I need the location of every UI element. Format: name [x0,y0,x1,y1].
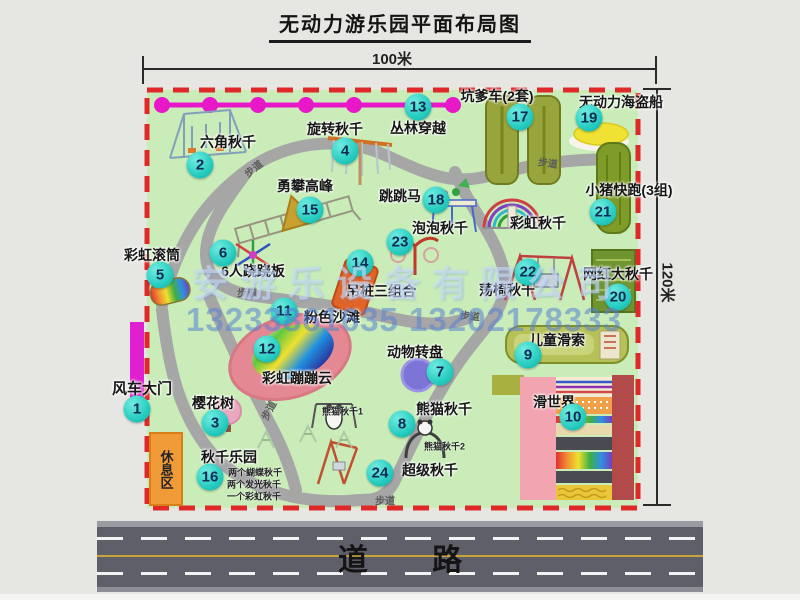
bottom-margin-strip [0,594,800,600]
item-2-label: 六角秋千 [200,132,256,152]
watermark-phone: 13233861635 13202178333 [186,301,622,339]
item-15-badge: 15 [297,197,324,224]
item-8-sublabel-1: 熊猫秋千1 [322,405,363,418]
item-24-label: 超级秋千 [402,460,458,480]
item-1-badge: 1 [124,396,151,423]
item-12-label: 彩虹蹦蹦云 [262,368,332,388]
item-19-badge: 19 [576,105,603,132]
item-2-badge: 2 [187,152,214,179]
item-5-label: 彩虹滚筒 [124,245,180,265]
item-13-badge: 13 [405,94,432,121]
item-23-badge: 23 [387,229,414,256]
item-4-badge: 4 [332,138,359,165]
road-label: 道 路 [338,535,462,579]
item-5-badge: 5 [147,262,174,289]
width-dimension-label: 100米 [372,48,412,69]
item-23-label: 泡泡秋千 [412,218,468,238]
item-10-badge: 10 [560,404,587,431]
item-8-badge: 8 [389,411,416,438]
item-18-label: 跳跳马 [379,186,421,206]
item-18-badge: 18 [423,187,450,214]
rest-area-box: 休息区 [149,432,183,506]
item-13-label: 丛林穿越 [390,118,446,138]
extra-label-1: 彩虹秋千 [510,213,566,233]
road-edge-top [97,521,703,527]
item-8-label: 熊猫秋千 [416,399,472,419]
item-3-badge: 3 [202,410,229,437]
item-16-badge: 16 [197,464,224,491]
item-15-label: 勇攀高峰 [277,176,333,196]
item-4-label: 旋转秋千 [307,119,363,139]
watermark-company: 安游乐设备有限公司 [192,255,624,307]
item-17-badge: 17 [507,104,534,131]
item-16-sublabel-3: 一个彩虹秋千 [227,490,281,503]
item-21-badge: 21 [590,199,617,226]
height-dimension-label: 120米 [658,262,679,302]
item-24-badge: 24 [367,460,394,487]
road-edge-bottom [97,587,703,592]
road: 道 路 [97,521,703,592]
walkway-label-2: 步道 [537,153,559,171]
walkway-label-6: 步道 [375,493,395,508]
item-7-badge: 7 [427,359,454,386]
item-21-label: 小猪快跑(3组) [585,180,672,200]
item-12-badge: 12 [254,336,281,363]
item-1-label: 风车大门 [112,378,172,399]
item-8-sublabel-2: 熊猫秋千2 [424,440,465,453]
item-9-badge: 9 [515,342,542,369]
screenshot-root: 无动力游乐园平面布局图 [0,0,800,600]
